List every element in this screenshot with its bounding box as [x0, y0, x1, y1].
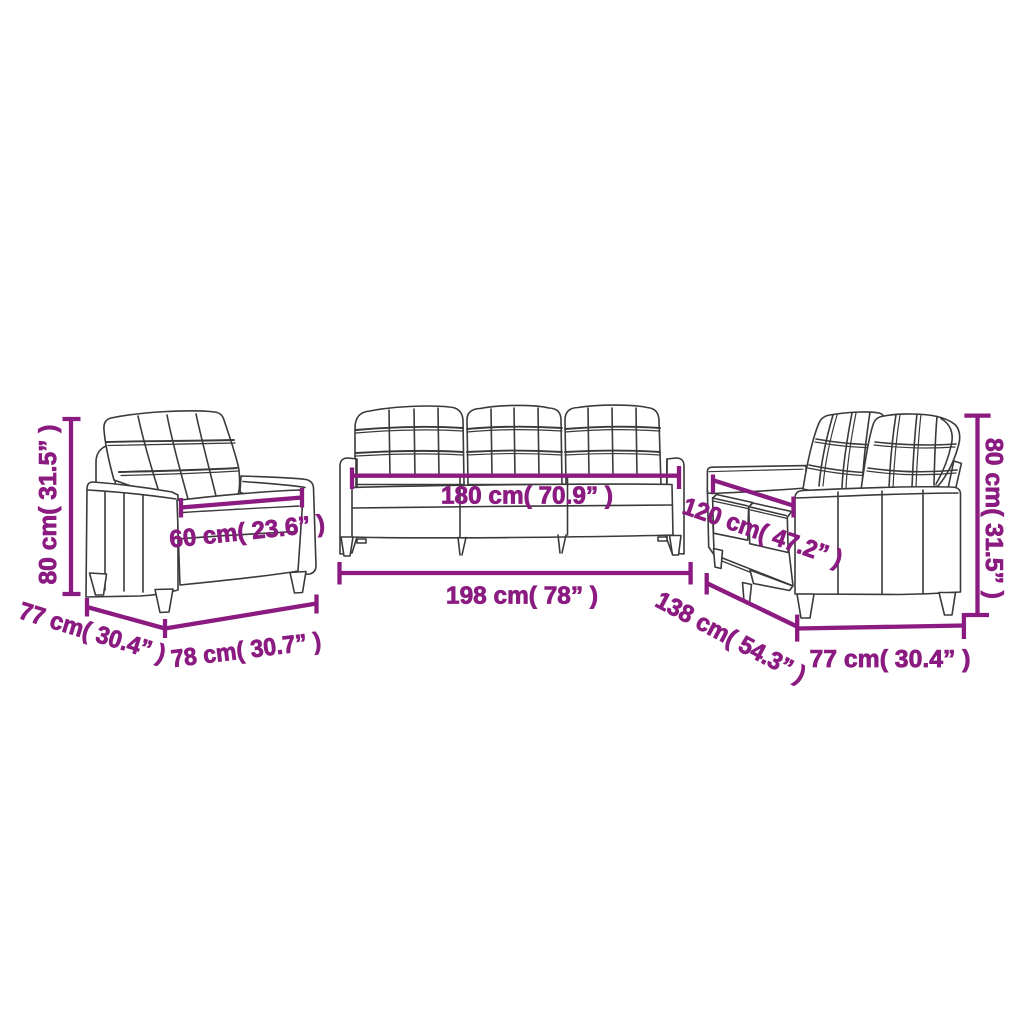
svg-text:198 cm( 78” ): 198 cm( 78” )	[446, 583, 598, 610]
svg-text:80 cm( 31.5” ): 80 cm( 31.5” )	[35, 425, 62, 585]
svg-text:77 cm( 30.4” ): 77 cm( 30.4” )	[810, 646, 971, 673]
svg-text:80 cm( 31.5” ): 80 cm( 31.5” )	[980, 438, 1007, 599]
svg-text:180 cm( 70.9” ): 180 cm( 70.9” )	[441, 483, 613, 510]
